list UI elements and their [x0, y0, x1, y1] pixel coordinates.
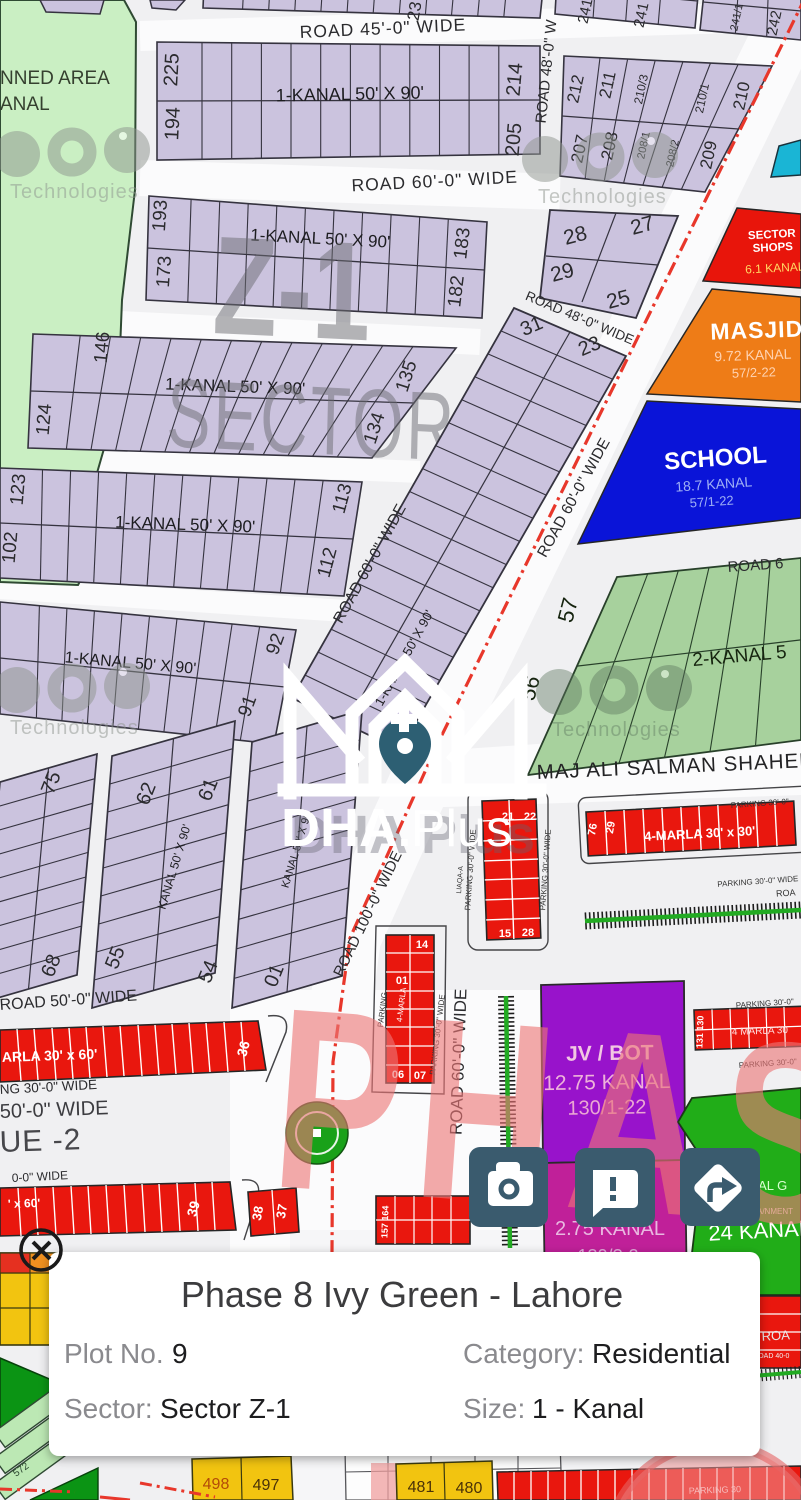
svg-text:182: 182	[444, 274, 469, 308]
svg-text:DHA.Plus: DHA.Plus	[281, 798, 512, 858]
svg-text:' x 60': ' x 60'	[8, 1196, 41, 1211]
svg-text:0-0" WIDE: 0-0" WIDE	[11, 1168, 68, 1185]
svg-text:9.72 KANAL: 9.72 KANAL	[714, 346, 792, 365]
svg-text:28: 28	[522, 927, 534, 939]
svg-text:UE -2: UE -2	[0, 1123, 82, 1159]
svg-text:1-KANAL 50' X 90': 1-KANAL 50' X 90'	[276, 82, 425, 105]
svg-text:50'-0" WIDE: 50'-0" WIDE	[0, 1097, 109, 1123]
svg-text:ANAL: ANAL	[0, 94, 50, 115]
svg-text:498: 498	[203, 1476, 230, 1493]
svg-text:15: 15	[499, 928, 511, 940]
svg-text:Sector Z-1: Sector Z-1	[160, 1393, 291, 1424]
svg-text:SECTOR: SECTOR	[166, 358, 458, 482]
svg-text:497: 497	[253, 1477, 280, 1494]
svg-text:57/2-22: 57/2-22	[732, 364, 777, 381]
svg-text:PHASE: PHASE	[265, 955, 801, 1293]
svg-text:481: 481	[408, 1479, 435, 1496]
svg-text:ROA: ROA	[761, 1327, 790, 1343]
svg-text:14: 14	[416, 939, 429, 951]
svg-text:146: 146	[91, 331, 115, 364]
svg-text:9: 9	[172, 1338, 188, 1369]
svg-text:76: 76	[586, 822, 600, 836]
svg-text:123: 123	[7, 473, 31, 506]
svg-text:6.1 KANAL: 6.1 KANAL	[745, 259, 801, 276]
svg-text:Technologies: Technologies	[538, 186, 667, 208]
svg-text:Plot No.: Plot No.	[64, 1338, 164, 1369]
svg-text:Category:: Category:	[463, 1338, 584, 1369]
svg-text:ROA: ROA	[776, 887, 796, 898]
svg-text:Z-1: Z-1	[211, 207, 372, 370]
svg-text:124: 124	[33, 402, 57, 436]
svg-text:ARLA 30' x 60': ARLA 30' x 60'	[2, 1046, 98, 1065]
svg-text:173: 173	[153, 255, 176, 288]
svg-text:SHOPS: SHOPS	[752, 241, 793, 255]
svg-text:Sector:: Sector:	[64, 1393, 153, 1424]
svg-text:225: 225	[160, 52, 184, 86]
svg-text:1 - Kanal: 1 - Kanal	[532, 1393, 644, 1424]
svg-text:Residential: Residential	[592, 1338, 731, 1369]
svg-text:193: 193	[149, 199, 172, 232]
svg-text:38: 38	[249, 1205, 266, 1222]
svg-text:MASJID: MASJID	[710, 315, 801, 344]
svg-text:183: 183	[450, 226, 475, 260]
svg-text:NNED AREA: NNED AREA	[0, 68, 110, 89]
svg-text:SECTOR: SECTOR	[748, 228, 797, 243]
svg-text:102: 102	[0, 531, 22, 564]
svg-text:Technologies: Technologies	[10, 717, 139, 739]
svg-text:194: 194	[161, 106, 185, 140]
svg-text:205: 205	[502, 122, 527, 157]
svg-text:Technologies: Technologies	[10, 181, 139, 203]
svg-text:480: 480	[456, 1480, 483, 1497]
svg-text:214: 214	[503, 62, 528, 97]
svg-text:DAD 40-0: DAD 40-0	[759, 1353, 790, 1360]
svg-text:Phase 8 Ivy Green - Lahore: Phase 8 Ivy Green - Lahore	[181, 1274, 623, 1315]
svg-text:Technologies: Technologies	[552, 719, 681, 741]
svg-text:29: 29	[604, 820, 618, 834]
svg-text:Size:: Size:	[463, 1393, 525, 1424]
svg-text:57/1-22: 57/1-22	[689, 492, 734, 510]
